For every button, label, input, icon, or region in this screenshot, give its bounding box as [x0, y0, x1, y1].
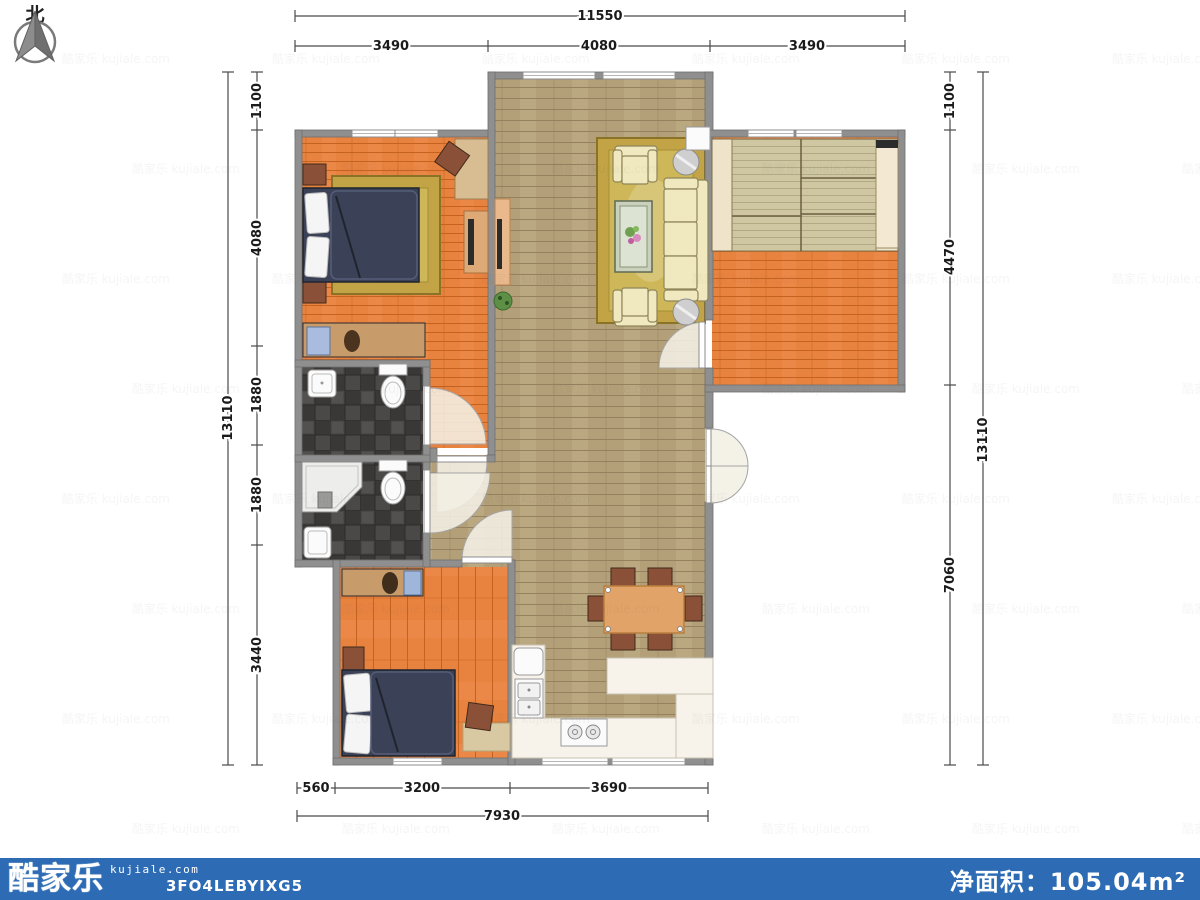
- kujiale-logo: 酷家乐: [8, 864, 104, 895]
- dining-chair: [648, 632, 672, 650]
- toilet: [379, 460, 407, 504]
- hamper: [307, 327, 330, 355]
- bathroom-sink: [304, 527, 331, 558]
- side-table: [673, 149, 699, 175]
- dining-chair: [685, 596, 702, 621]
- dim-bottom: 560 3200 3690 7930: [297, 781, 708, 824]
- nightstand: [303, 164, 326, 185]
- footer-brand-block: 酷家乐 kujiale.com 3FO4LEBYIXG5: [0, 863, 303, 895]
- bathroom-sink: [308, 370, 336, 397]
- master-bed: [303, 188, 419, 282]
- wall: [333, 560, 462, 567]
- dim-label: 13110: [976, 417, 991, 462]
- shower-head: [318, 492, 332, 508]
- bedroom-desk: [342, 569, 423, 596]
- kitchen-counter: [607, 658, 713, 694]
- dim-label: 3490: [373, 39, 409, 54]
- kitchen-sink: [515, 679, 543, 718]
- dim-label: 4080: [250, 220, 265, 256]
- kitchen-counter: [676, 694, 713, 758]
- floorplan-canvas: 北: [0, 0, 1200, 858]
- nightstand: [303, 281, 326, 303]
- dining-chair: [611, 632, 635, 650]
- dim-label: 11550: [577, 9, 622, 24]
- entry-double-door: [706, 429, 748, 503]
- dim-label: 13110: [221, 395, 236, 440]
- living-window: [603, 72, 675, 79]
- dining-chair: [588, 596, 605, 621]
- dim-label: 4080: [581, 39, 617, 54]
- clothes: [404, 571, 421, 595]
- kujiale-domain: kujiale.com: [110, 863, 303, 876]
- dim-label: 3200: [404, 781, 440, 796]
- sofa: [664, 178, 708, 301]
- dim-right: 1100 4470 7060 13110: [943, 72, 991, 765]
- wall: [295, 360, 430, 367]
- dining-chair: [611, 568, 635, 586]
- wall: [705, 368, 713, 428]
- wall: [333, 560, 340, 765]
- right-bedroom-window: [748, 130, 794, 137]
- dim-left: 13110 1100 4080 1880 1880 3440: [221, 72, 265, 765]
- wall: [295, 455, 430, 462]
- kitchen-window: [612, 758, 685, 765]
- desk-chair: [465, 702, 493, 730]
- dim-label: 560: [302, 781, 329, 796]
- dim-label: 1880: [250, 377, 265, 413]
- living-window: [523, 72, 595, 79]
- armchair: [613, 146, 657, 184]
- dim-label: 3440: [250, 637, 265, 673]
- dining-chair: [648, 568, 672, 586]
- nightstand: [343, 647, 364, 670]
- wall: [295, 130, 302, 567]
- bedroom-dresser: [303, 323, 425, 357]
- plan-code: 3FO4LEBYIXG5: [166, 877, 303, 895]
- wall: [487, 455, 495, 462]
- bag: [382, 572, 398, 594]
- dim-top: 11550 3490 4080 3490: [295, 9, 905, 54]
- net-area-label: 净面积：105.04m²: [950, 862, 1200, 897]
- dim-label: 1880: [250, 477, 265, 513]
- bag: [344, 330, 360, 352]
- wall: [430, 448, 437, 462]
- compass: 北: [15, 4, 55, 62]
- stove: [561, 719, 607, 746]
- bottom-bed: [342, 670, 455, 756]
- coffee-table: [615, 201, 652, 272]
- floorplan-page: 北: [0, 0, 1200, 900]
- kitchen-window: [542, 758, 608, 765]
- dining-table: [604, 586, 684, 633]
- plant: [494, 292, 512, 310]
- wall: [423, 533, 430, 567]
- bottom-bedroom-window: [393, 758, 442, 765]
- tatami-bed: [712, 139, 898, 251]
- wall: [705, 385, 905, 392]
- dim-label: 1100: [943, 83, 958, 119]
- right-bedroom-window: [796, 130, 842, 137]
- tv-cabinet-bedroom: [464, 211, 488, 273]
- wall: [488, 72, 495, 455]
- toilet: [379, 364, 407, 408]
- kitchen-appliance: [514, 648, 543, 675]
- dim-label: 3690: [591, 781, 627, 796]
- entry-cabinet: [686, 127, 710, 150]
- dim-label: 4470: [943, 239, 958, 275]
- tv-cabinet-living: [495, 199, 510, 285]
- dim-label: 7930: [484, 809, 520, 824]
- wall: [488, 72, 713, 79]
- dim-label: 3490: [789, 39, 825, 54]
- dim-label: 1100: [250, 83, 265, 119]
- wall: [898, 130, 905, 392]
- tv-screen: [468, 219, 474, 265]
- armchair: [613, 288, 657, 326]
- side-table: [673, 299, 699, 325]
- footer-bar: 酷家乐 kujiale.com 3FO4LEBYIXG5 净面积：105.04m…: [0, 858, 1200, 900]
- master-bedroom-window: [352, 130, 438, 137]
- dim-label: 7060: [943, 557, 958, 593]
- tv-screen: [497, 219, 502, 269]
